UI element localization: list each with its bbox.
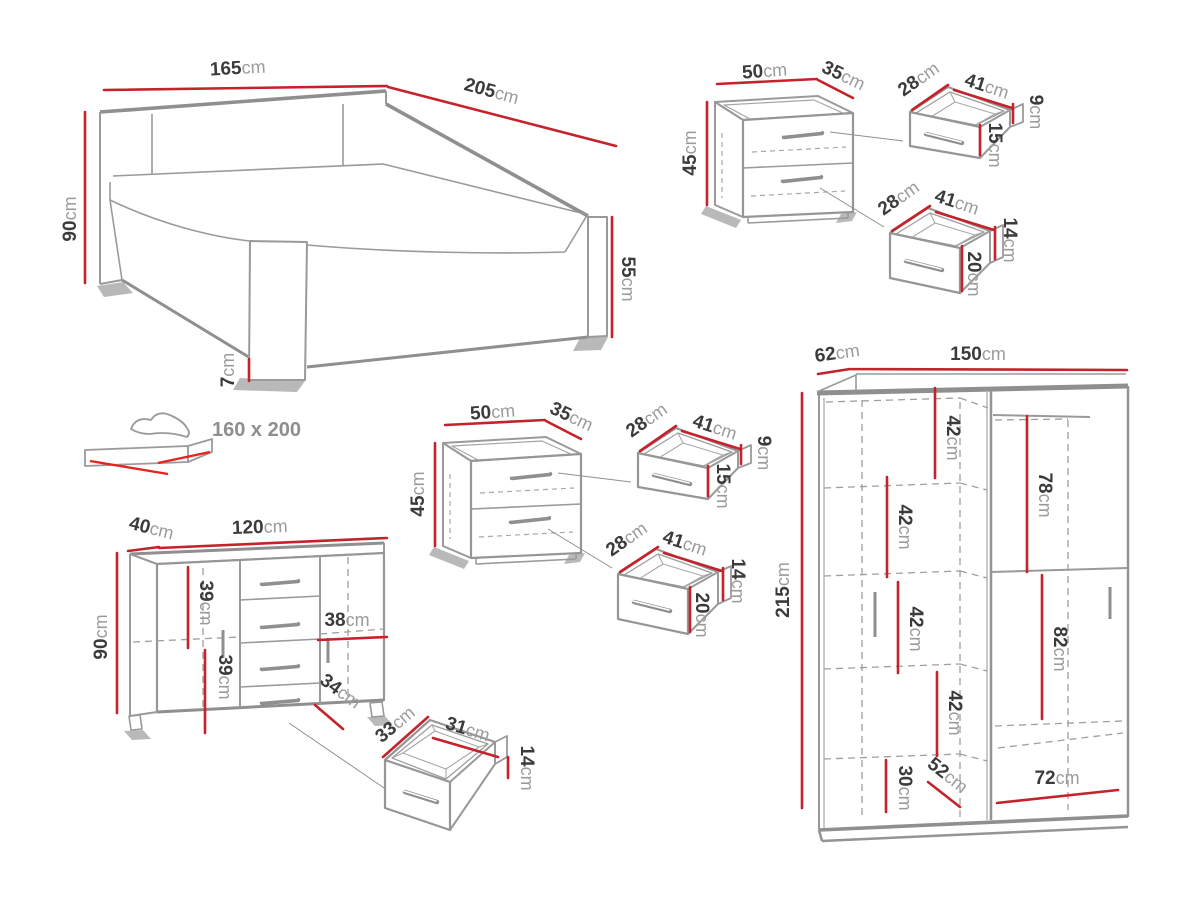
- drawer-large-front-height-label: 20cm: [963, 251, 984, 296]
- bed-leg-height-label: 7cm: [218, 353, 239, 388]
- dresser-height-label: 90cm: [91, 614, 112, 659]
- mattress-front-edge: [110, 200, 586, 253]
- wardrobe-shelf3-label: 42cm: [905, 606, 926, 651]
- drawer-large-depth-label: 28cm: [874, 177, 923, 220]
- wardrobe-width-label: 150cm: [950, 344, 1006, 365]
- wardrobe-drawing: 62cm 150cm 215cm 42cm 78cm 42cm 42cm 82c…: [773, 340, 1128, 841]
- mattress-size-label: 160 x 200: [212, 419, 301, 441]
- wardrobe-base-height-label: 30cm: [894, 765, 915, 810]
- drawer-large-back-height-label: 14cm: [727, 558, 748, 603]
- bed-height-label: 90cm: [60, 196, 81, 241]
- nightstand-middle-height-label: 45cm: [408, 471, 429, 516]
- wardrobe-height-label: 215cm: [773, 562, 794, 618]
- bed-length-label: 205cm: [462, 74, 521, 109]
- furniture-dimensions-diagram: 165cm 205cm 90cm 55cm 7cm 160 x 200: [0, 0, 1200, 900]
- drawer-small-front-height-label: 15cm: [984, 122, 1005, 167]
- dresser-depth-label: 40cm: [127, 513, 176, 544]
- nightstand-middle-depth-label: 35cm: [546, 398, 596, 436]
- wardrobe-shelf1-label: 42cm: [942, 415, 963, 460]
- wardrobe-hanging-bottom-label: 82cm: [1049, 626, 1070, 671]
- bed-drawing: 165cm 205cm 90cm 55cm 7cm: [60, 57, 638, 392]
- drawer-large-depth-label: 28cm: [602, 518, 651, 561]
- wardrobe-shelf4-label: 42cm: [944, 690, 965, 735]
- dresser-drawer-detail: 33cm 31cm 14cm: [371, 702, 537, 830]
- furniture-dimensions-page: 165cm 205cm 90cm 55cm 7cm 160 x 200: [0, 0, 1200, 900]
- drawer-small-back-height-label: 9cm: [753, 436, 774, 471]
- bed-leg-front: [249, 241, 307, 380]
- dresser-drawing: 40cm 120cm 90cm 39cm 39cm 38cm 34cm: [91, 513, 393, 790]
- dresser-lower-section-label: 39cm: [214, 654, 235, 699]
- side-rail-edge: [386, 104, 588, 216]
- bed-side-height-label: 55cm: [617, 256, 638, 301]
- drawer-large-back-height-label: 14cm: [999, 217, 1020, 262]
- wardrobe-inner-width-label: 72cm: [1034, 768, 1079, 789]
- wardrobe-outer-dimension-lines: [802, 369, 1127, 808]
- dresser-drawer-height-label: 14cm: [516, 745, 537, 790]
- dresser-width-label: 120cm: [232, 516, 288, 539]
- wardrobe-diagonal-label: 52cm: [923, 753, 972, 797]
- dresser-shelf-width-label: 38cm: [324, 610, 369, 631]
- mattress-far-edge: [383, 164, 585, 214]
- wardrobe-hanging-top-label: 78cm: [1034, 472, 1055, 517]
- mattress-size-icon: 160 x 200: [83, 382, 301, 474]
- shelf-and-rail: [991, 415, 1127, 572]
- nightstand-top-depth-label: 35cm: [818, 57, 868, 95]
- frame-bottom-edge: [122, 280, 588, 367]
- bed-width-label: 165cm: [209, 57, 266, 81]
- pillow-icon: [131, 413, 189, 437]
- wardrobe-inner-dimension-lines: [886, 388, 1118, 812]
- dresser-upper-section-label: 39cm: [195, 580, 216, 625]
- drawer-large-front-height-label: 20cm: [691, 592, 712, 637]
- bed-leg-right: [588, 217, 607, 337]
- wardrobe-depth-label: 62cm: [813, 340, 861, 367]
- shelf-dashed-lines: [824, 483, 960, 759]
- drawer-small-front-height-label: 15cm: [712, 463, 733, 508]
- drawer-small-back-height-label: 9cm: [1025, 95, 1046, 130]
- wardrobe-top-edge: [817, 386, 1128, 393]
- dresser-side: [130, 554, 157, 716]
- nightstand-top-height-label: 45cm: [680, 130, 701, 175]
- wardrobe-shelf2-label: 42cm: [894, 504, 915, 549]
